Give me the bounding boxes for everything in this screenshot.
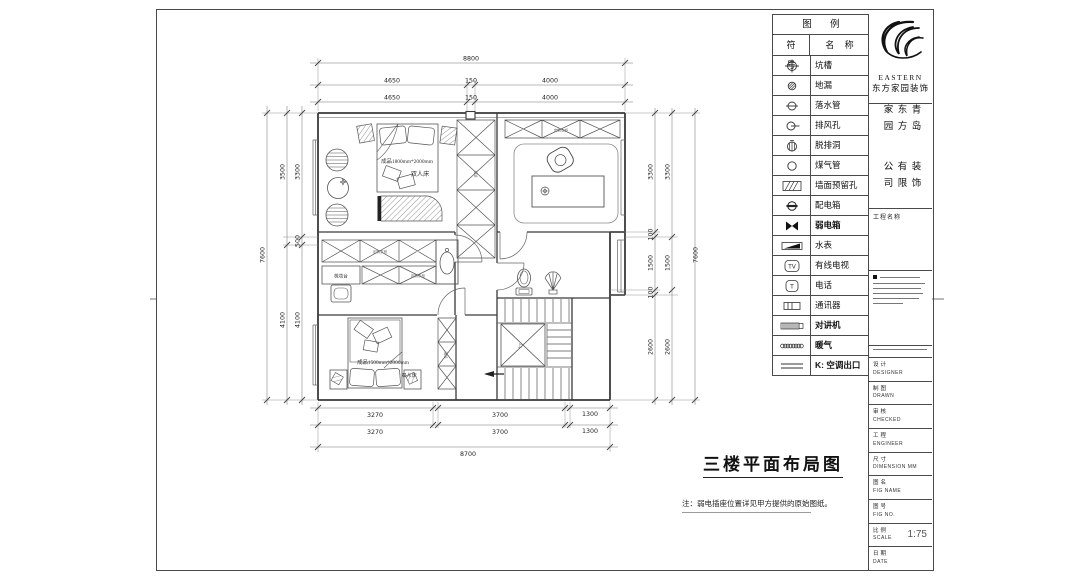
dim-label: 2600 <box>665 339 672 355</box>
illegible-text-line <box>873 293 923 294</box>
power-box-icon <box>773 196 811 215</box>
dim-label: 1300 <box>582 411 598 418</box>
dim-label: 3300 <box>648 164 655 180</box>
legend-row: K: 空调出口 <box>773 356 869 375</box>
dim-label: 100 <box>648 228 655 240</box>
address-cell <box>869 346 932 358</box>
illegible-text-line <box>873 288 921 289</box>
bed1-spec-label: 成品1800mm*2000mm <box>381 157 434 165</box>
legend-row: 水表 <box>773 236 869 256</box>
dim-label: 4100 <box>295 312 302 328</box>
pillow <box>379 126 407 146</box>
radiator-icon <box>773 336 811 355</box>
wardrobe-column-center <box>457 120 495 258</box>
window-bay-right <box>618 240 626 292</box>
dim-label: 4650 <box>384 95 400 102</box>
legend-name: 落水管 <box>811 96 869 115</box>
legend-name: 脱排洞 <box>811 136 869 155</box>
side-table-star <box>328 178 349 199</box>
titleblock-row-designer: 设计 DESIGNER <box>869 358 932 382</box>
legend-name: 煤气管 <box>811 156 869 175</box>
dim-label: 3300 <box>665 164 672 180</box>
svg-text:TV: TV <box>787 263 797 270</box>
svg-text:T: T <box>789 283 794 290</box>
dim-label: 4100 <box>280 312 287 328</box>
dim-label: 150 <box>465 78 477 85</box>
title-block: EASTERN 东方家园装饰 青岛东方家园 装饰有限公司 工程名称 设计 DES… <box>868 14 932 570</box>
dim-label: 4000 <box>542 78 558 85</box>
stair-void <box>501 324 545 366</box>
legend-row: 地漏 <box>773 76 869 96</box>
armchair-striped-1 <box>326 149 348 171</box>
desk <box>532 176 604 207</box>
stairs <box>497 299 572 399</box>
brand-cn: 东方家园装饰 <box>869 82 932 94</box>
desk-grommet <box>541 187 549 195</box>
dim-label: 2600 <box>648 339 655 355</box>
legend-row: 弱电箱 <box>773 216 869 236</box>
pillow <box>349 368 374 387</box>
dim-label: 7600 <box>693 247 700 263</box>
legend-name: 弱电箱 <box>811 216 869 235</box>
cabinet-label: 衣柜 <box>443 351 448 359</box>
bed2-name-label: 双人床 <box>401 371 417 379</box>
stair-direction-arrow <box>484 371 504 377</box>
project-name-cell: 工程名称 <box>869 209 932 271</box>
intercom-icon <box>773 316 811 335</box>
bed-double-top <box>377 124 438 192</box>
legend-name: 有线电视 <box>811 256 869 275</box>
dressing-stool <box>331 285 351 302</box>
rug <box>514 144 618 223</box>
company-name-cell: 青岛东方家园 装饰有限公司 <box>869 104 932 209</box>
illegible-text-line <box>873 283 925 284</box>
desk-chair <box>545 145 576 175</box>
dim-label: 3700 <box>492 429 508 436</box>
legend-row: 排风孔 <box>773 116 869 136</box>
cabinet-label: 定制衣柜 <box>554 128 569 133</box>
dim-label: 8800 <box>463 56 479 63</box>
nightstand-lamp <box>440 126 457 145</box>
brand-en: EASTERN <box>869 73 932 82</box>
notes-cell <box>869 271 932 346</box>
legend-column-headers: 符 号 名 称 <box>773 35 869 56</box>
bullet-square-icon <box>873 275 877 279</box>
legend-row: T 电话 <box>773 276 869 296</box>
legend-row: 通讯器 <box>773 296 869 316</box>
legend-row: 对讲机 <box>773 316 869 336</box>
cabinet-label: 定制衣柜 <box>373 249 388 254</box>
illegible-text-line <box>873 349 927 350</box>
dim-label: 150 <box>465 95 477 102</box>
ac-outlet-icon <box>773 356 811 375</box>
dim-label: 500 <box>295 235 302 247</box>
legend-col-symbol: 符 号 <box>773 35 810 55</box>
legend-name: 地漏 <box>811 76 869 95</box>
legend-name: 通讯器 <box>811 296 869 315</box>
scale-value: 1:75 <box>908 529 927 540</box>
armchair-striped-2 <box>326 204 348 226</box>
drawing-note: 注：弱电插座位置详见甲方提供的原始图纸。 <box>682 498 832 509</box>
exterior-walls <box>318 113 625 400</box>
cabinet-label: 定制衣柜 <box>411 273 426 278</box>
titleblock-row-figno: 图号 FIG NO. <box>869 500 932 524</box>
door-study <box>500 232 527 259</box>
title-block-rows: 设计 DESIGNER 制图 DRAWN 审核 CHECKED 工程 ENGIN… <box>869 358 932 570</box>
dim-label: 3700 <box>492 412 508 419</box>
bench-hatched <box>378 196 443 221</box>
legend-name: 排风孔 <box>811 116 869 135</box>
dim-label: 3300 <box>295 164 302 180</box>
legend-row: 暖气 <box>773 336 869 356</box>
nightstand-lamp <box>357 124 375 143</box>
bed1-name-label: 双人床 <box>411 170 430 178</box>
titleblock-row-engineer: 工程 ENGINEER <box>869 429 932 453</box>
legend-title: 图 例 <box>773 15 869 35</box>
plan-labels: 成品1800mm*2000mm 双人床 成品1500mm*2000mm 双人床 … <box>334 128 568 380</box>
dim-label: 4650 <box>384 78 400 85</box>
floor-drain-icon <box>773 76 811 95</box>
gas-pipe-icon <box>773 156 811 175</box>
water-meter-icon <box>773 236 811 255</box>
downspout-icon <box>773 96 811 115</box>
dim-label: 8700 <box>460 451 476 458</box>
dim-label: 7600 <box>260 247 267 263</box>
company-logo-cell: EASTERN 东方家园装饰 <box>869 14 932 104</box>
dim-label: 3270 <box>367 412 383 419</box>
note-rule-line <box>682 512 811 513</box>
cabinet-label: 衣柜 <box>473 170 478 178</box>
legend-row: 落水管 <box>773 96 869 116</box>
pillow <box>375 368 400 387</box>
dim-label: 4000 <box>542 95 558 102</box>
titleblock-row-scale: 比例 SCALE 1:75 <box>869 524 932 548</box>
legend-name: 墙面预留孔 <box>811 176 869 195</box>
legend-col-name: 名 称 <box>810 35 869 55</box>
cable-tv-icon: TV <box>773 256 811 275</box>
dim-label: 1300 <box>582 428 598 435</box>
legend-row: 配电箱 <box>773 196 869 216</box>
stairs-label: 上 <box>518 342 523 348</box>
company-name-right: 青岛东方家园 <box>880 104 922 151</box>
dimension-text: 8800 4650 150 4000 4650 150 4000 3270 37… <box>260 56 700 459</box>
dim-label: 1500 <box>665 255 672 271</box>
bed-double-bottom <box>348 318 402 388</box>
legend-name: 坑槽 <box>811 56 869 75</box>
legend-name: 暖气 <box>811 336 869 355</box>
illegible-text-line <box>873 303 903 304</box>
eastern-logo-icon <box>869 14 931 72</box>
dim-label: 3270 <box>367 429 383 436</box>
legend-name: 水表 <box>811 236 869 255</box>
legend-name: 配电箱 <box>811 196 869 215</box>
dim-label: 3500 <box>280 164 287 180</box>
dim-label: 1500 <box>648 255 655 271</box>
company-name-left: 装饰有限公司 <box>880 161 922 208</box>
legend-name: 电话 <box>811 276 869 295</box>
titleblock-row-dimension: 尺寸 DIMENSION MM <box>869 453 932 477</box>
legend-name: 对讲机 <box>811 316 869 335</box>
project-name-label: 工程名称 <box>869 209 932 221</box>
exhaust-vent-icon <box>773 116 811 135</box>
dresser-label: 梳妆台 <box>334 273 348 280</box>
weak-current-box-icon <box>773 216 811 235</box>
titleblock-row-figname: 图名 FIG NAME <box>869 476 932 500</box>
telephone-icon: T <box>773 276 811 295</box>
legend-row: 坑槽 <box>773 56 869 76</box>
illegible-text-line <box>880 277 920 278</box>
hood-vent-icon <box>773 136 811 155</box>
dim-label: 100 <box>648 286 655 298</box>
nightstand-lamp <box>330 370 347 389</box>
toilet <box>516 269 532 295</box>
door-bedroom2 <box>438 288 465 315</box>
titleblock-row-drawn: 制图 DRAWN <box>869 382 932 406</box>
drawing-title: 三楼平面布局图 <box>703 450 843 478</box>
legend-row: 脱排洞 <box>773 136 869 156</box>
illegible-text-line <box>873 298 919 299</box>
plant <box>545 272 561 294</box>
legend-row: 墙面预留孔 <box>773 176 869 196</box>
titleblock-row-date: 日期 DATE <box>869 547 932 570</box>
pillow <box>407 126 435 146</box>
bed2-spec-label: 成品1500mm*2000mm <box>357 358 410 366</box>
wall-reserved-hole-icon <box>773 176 811 195</box>
communicator-icon <box>773 296 811 315</box>
titleblock-row-checked: 审核 CHECKED <box>869 405 932 429</box>
legend-table: 图 例 符 号 名 称 坑槽 地漏 落水管 排风孔 脱排洞 煤气管 墙面预留孔 … <box>772 14 870 376</box>
pit-marker-icon <box>773 56 811 75</box>
interior-walls <box>318 113 625 400</box>
legend-row: 煤气管 <box>773 156 869 176</box>
legend-row: TV 有线电视 <box>773 256 869 276</box>
legend-name: K: 空调出口 <box>811 356 869 375</box>
wall-pier <box>466 112 475 120</box>
